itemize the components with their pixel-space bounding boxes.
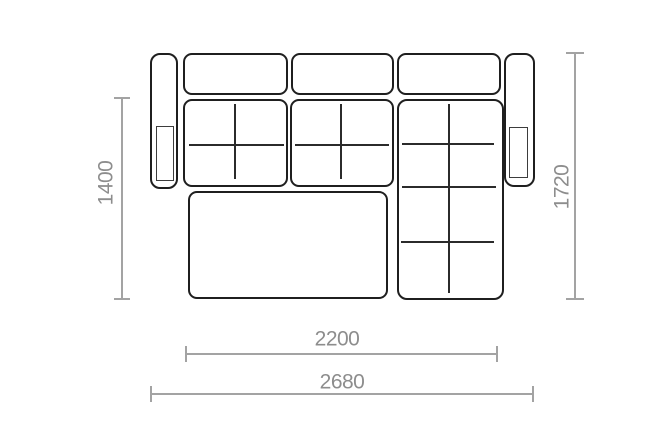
dimension-tick [532,386,534,402]
left-armrest-panel [156,126,174,181]
dimension-line-left [121,98,123,299]
chaise-tuft-horizontal-line-2 [402,186,496,188]
dimension-label-outer-width: 2680 [320,372,365,393]
dimension-tick [114,298,130,300]
chaise-tuft-horizontal-line-3 [401,241,494,243]
dimension-line-inner-width [185,353,497,355]
dimension-tick [150,386,152,402]
dimension-tick [185,346,187,362]
dimension-line-right [574,53,576,299]
dimension-label-inner-width: 2200 [315,329,360,350]
dimension-tick [566,52,584,54]
sofa-dimension-diagram: 1400 1720 2200 2680 [0,0,666,444]
right-armrest-panel [509,127,528,178]
back-cushion-2 [291,53,394,95]
dimension-tick [566,298,584,300]
seat-cushion-2 [290,99,394,187]
ottoman-seat [188,191,388,299]
dimension-tick [496,346,498,362]
seat1-tuft-horizontal-line [189,144,284,146]
dimension-label-left-depth: 1400 [96,161,117,206]
chaise-section [397,99,504,300]
seat2-tuft-horizontal-line [295,144,389,146]
back-cushion-3 [397,53,501,95]
dimension-label-right-depth: 1720 [552,165,573,210]
chaise-tuft-vertical-line [448,104,450,293]
dimension-tick [114,97,130,99]
seat1-tuft-vertical-line [234,104,236,179]
back-cushion-1 [183,53,288,95]
chaise-tuft-horizontal-line-1 [402,143,494,145]
seat2-tuft-vertical-line [340,104,342,179]
